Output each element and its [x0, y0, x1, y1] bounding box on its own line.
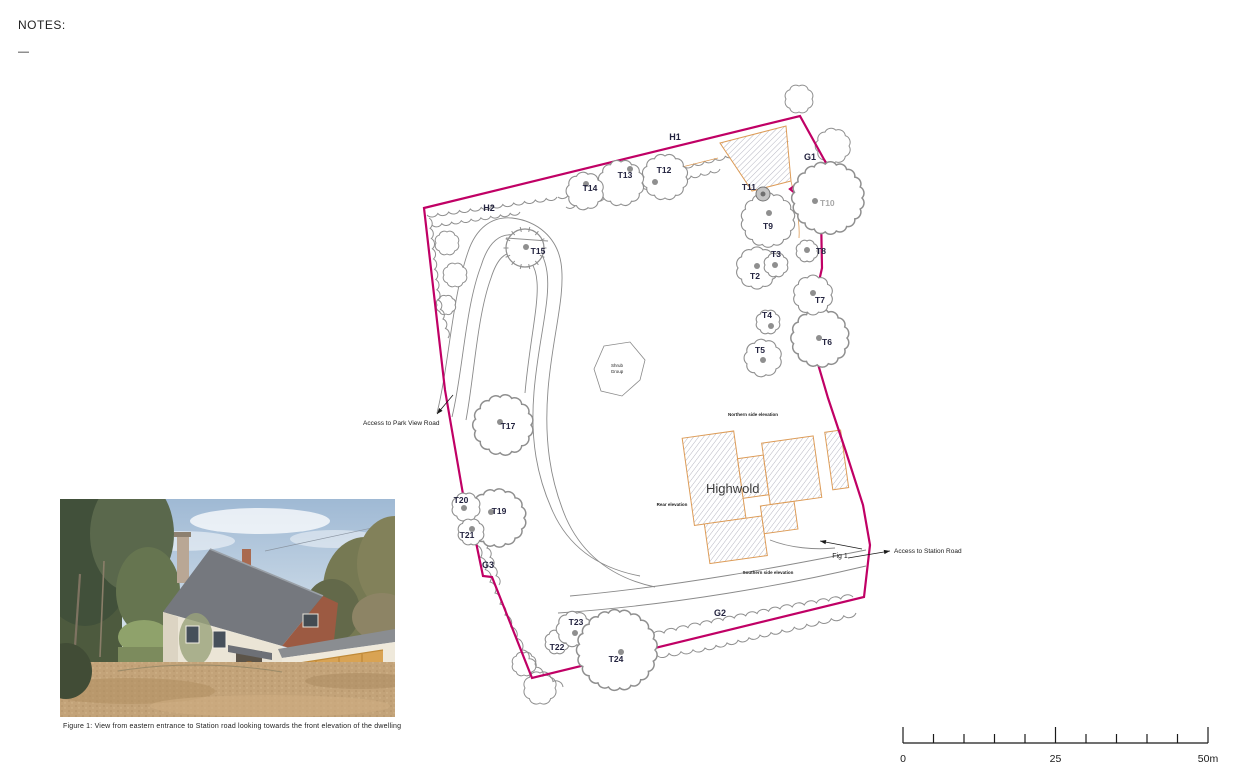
tree-T12-stem [652, 179, 658, 185]
tree-T23-stem [572, 630, 578, 636]
tree-T23-label: T23 [569, 617, 584, 627]
building-block [825, 430, 849, 490]
label-H1: H1 [669, 132, 681, 142]
tree-T9-canopy [741, 193, 794, 248]
group-G2-bottom [633, 613, 856, 661]
tree-T22-label: T22 [550, 642, 565, 652]
tree-T13-label: T13 [618, 170, 633, 180]
tree-T9-label: T9 [763, 221, 773, 231]
tree-T5-stem [760, 357, 766, 363]
tree-T10-label: T10 [820, 198, 835, 208]
tree-T5-label: T5 [755, 345, 765, 355]
tree-T4-stem [768, 323, 774, 329]
figure-photo [60, 499, 395, 717]
access-park-view-road-label: Access to Park View Road [363, 420, 440, 427]
tree-T12-canopy [642, 154, 687, 199]
tree-T15-label: T15 [531, 246, 546, 256]
building-block [704, 516, 767, 564]
building-block [760, 501, 798, 533]
label-G3: G3 [482, 560, 494, 570]
tree-T21-label: T21 [460, 530, 475, 540]
tree-T8-label: T8 [816, 246, 826, 256]
tree-T12-label: T12 [657, 165, 672, 175]
northern-elevation-label: Northern side elevation [728, 412, 778, 417]
hedge-H2-inner [432, 212, 520, 227]
tree-T17-label: T17 [501, 421, 516, 431]
tree-T11-label: T11 [742, 182, 756, 192]
tree-T14-label: T14 [583, 183, 598, 193]
label-G1: G1 [804, 152, 816, 162]
tree-T8-stem [804, 247, 810, 253]
tree-T3-stem [772, 262, 778, 268]
tree-T13-canopy [598, 160, 643, 205]
scale-label: 25 [1050, 753, 1062, 765]
tree-T4-label: T4 [762, 310, 772, 320]
label-H2: H2 [483, 203, 495, 213]
drawing-sheet: NOTES: — T2T3T4T5T6T7T8T9T10T11T12T13T14… [0, 0, 1243, 775]
tree-T24-label: T24 [609, 654, 624, 664]
tree-T7-label: T7 [815, 295, 825, 305]
scale-bar: 02550m [889, 716, 1234, 772]
label-G2: G2 [714, 608, 726, 618]
rear-elevation-label: Rear elevation [657, 502, 688, 507]
left-trees [60, 499, 180, 669]
fig1-arrow [820, 540, 862, 549]
scale-label: 0 [900, 753, 906, 765]
tree-T10-stem [812, 198, 818, 204]
house-photo-illustration [60, 499, 395, 717]
vegetation-cloud [815, 128, 850, 163]
southern-elevation-label: Southern side elevation [743, 570, 794, 575]
vegetation-cloud [785, 85, 813, 113]
group-G2-top [628, 595, 853, 641]
tree-T3-label: T3 [771, 249, 781, 259]
figure-caption: Figure 1: View from eastern entrance to … [63, 723, 403, 730]
building-name-label: Highwold [706, 481, 759, 496]
scale-label: 50m [1198, 753, 1219, 765]
tree-T2-stem [754, 263, 760, 269]
access-station-road-label: Access to Station Road [894, 548, 962, 555]
building-block [682, 431, 746, 525]
fig1-label: Fig 1 [832, 553, 848, 560]
driveway-line [558, 566, 866, 613]
building-block [762, 436, 822, 505]
tree-T19-label: T19 [492, 506, 507, 516]
tree-T15-stem [523, 244, 529, 250]
shrub-group-label: Shrub [611, 363, 624, 368]
tree-T20-stem [461, 505, 467, 511]
tree-T2-label: T2 [750, 271, 760, 281]
shrub-group-label: Group [611, 369, 624, 374]
tree-T6-label: T6 [822, 337, 832, 347]
tree-T9-stem [766, 210, 772, 216]
tree-T20-label: T20 [454, 495, 469, 505]
vegetation-cloud [435, 231, 459, 255]
